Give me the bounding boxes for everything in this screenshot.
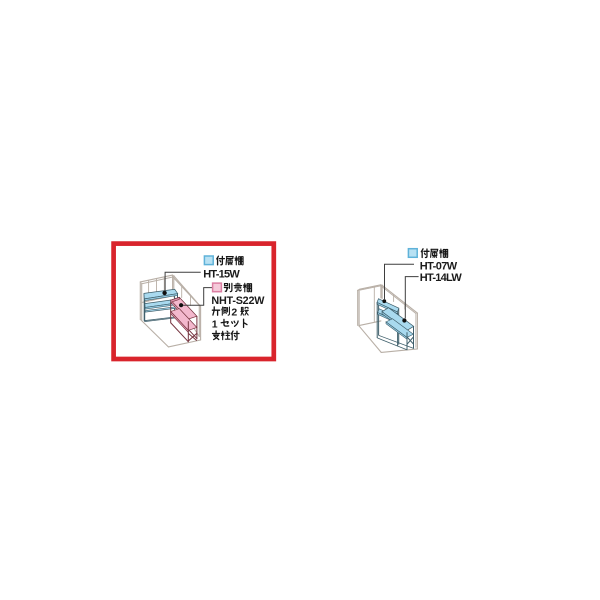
svg-text:NHT-S22W: NHT-S22W: [211, 295, 265, 307]
svg-text:HT-15W: HT-15W: [203, 268, 240, 280]
svg-text:HT-07W: HT-07W: [420, 260, 458, 272]
svg-text:HT-14LW: HT-14LW: [420, 272, 463, 284]
svg-text:1: 1: [212, 318, 218, 330]
svg-text:2: 2: [231, 306, 237, 318]
